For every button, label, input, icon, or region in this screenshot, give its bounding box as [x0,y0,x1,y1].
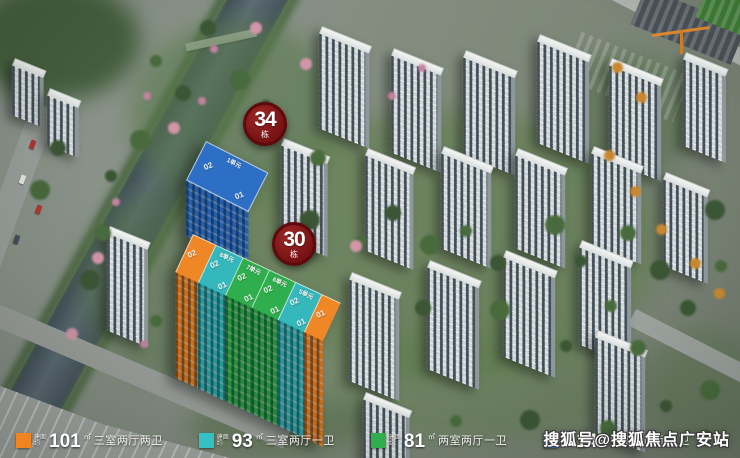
tree [630,340,646,356]
blossom-tree [388,92,396,100]
tree [415,300,431,316]
legend-room-type: 三室两厅两卫 [94,432,163,448]
legend-area-unit: ㎡ [256,434,263,441]
blossom-tree [350,240,362,252]
tree [660,400,672,412]
blossom-tree [66,328,78,340]
facade-section [198,283,225,402]
legend-room-type: 三室两厅一卫 [266,432,335,448]
autumn-tree [630,186,641,197]
flat-number: 01 [315,308,327,320]
aerial-render: 1单元 02 01 02 8单元 02 01 7单元 02 01 [0,0,740,458]
badge-suffix: 栋 [290,251,298,259]
facade-section [278,320,304,438]
tree [200,20,216,36]
tree [490,255,506,271]
flat-number: 02 [288,296,300,308]
residential-tower [357,48,444,159]
tree [650,260,670,280]
blossom-tree [250,22,262,34]
badge-suffix: 栋 [261,131,269,139]
blossom-tree [210,45,218,53]
legend-room-type: 两室两厅一卫 [438,432,507,448]
blossom-tree [143,92,151,100]
blossom-tree [198,97,206,105]
tower-facade [107,233,148,347]
legend-color-swatch [16,433,31,448]
legend-item: 建面约 93 ㎡ 三室两厅一卫 [199,432,335,450]
blossom-tree [168,122,180,134]
tree [420,235,440,255]
autumn-tree [612,62,623,73]
legend-area-value: 93 [232,434,253,450]
tower-facade [391,55,441,172]
legend-area-value: 101 [49,434,81,450]
legend-item: 建面约 81 ㎡ 两室两厅一卫 [371,432,507,450]
tower-facade [427,267,479,389]
autumn-tree [604,150,615,161]
residential-tower [502,34,592,150]
flat-number: 02 [262,283,274,295]
legend-area-prefix: 建面约 [389,435,401,448]
autumn-tree [714,288,725,299]
building-34-badge[interactable]: 34 栋 [243,102,287,146]
tower-facade [349,279,399,401]
tree [30,180,50,200]
tree [620,225,636,241]
watermark: 搜狐号@搜狐焦点广安站 [543,426,730,450]
unit-label: 7单元 [245,262,263,277]
tree [385,205,401,221]
legend-color-swatch [199,433,214,448]
building-30-badge[interactable]: 30 栋 [272,222,316,266]
tree [575,255,587,267]
tree [700,380,720,400]
tree [450,415,462,427]
tree [545,215,565,235]
tree [105,170,117,182]
flat-number: 02 [236,271,248,283]
unit-label: 6单元 [271,274,289,289]
legend-color-swatch [371,433,386,448]
facade-section [251,308,277,426]
tree [605,300,617,312]
blossom-tree [418,64,426,72]
tree [150,55,162,67]
tree [230,70,250,90]
autumn-tree [656,224,667,235]
tree [490,300,510,320]
facade-section [225,295,251,413]
autumn-tree [636,92,647,103]
flat-number: 02 [186,248,198,260]
tower-facade [515,155,565,268]
flat-number: 02 [202,160,214,172]
tree [715,260,727,272]
legend-area-value: 81 [404,434,425,450]
unit-label: 5单元 [297,287,315,302]
tree [520,410,540,430]
legend-area-unit: ㎡ [428,434,435,441]
unit-label: 8单元 [218,250,236,265]
tree [95,225,111,241]
autumn-tree [690,258,701,269]
tower-facade [441,153,491,268]
tree [705,200,725,220]
residential-tower [633,172,710,272]
blossom-tree [300,58,312,70]
legend-area-prefix: 建面约 [34,435,46,448]
flat-number: 01 [234,190,246,202]
blossom-tree [92,252,104,264]
tree [130,130,150,150]
tree [175,85,191,101]
tree [80,270,100,290]
legend-area-prefix: 建面约 [217,435,229,448]
tree [310,150,326,166]
tree [50,140,66,156]
blossom-tree [112,198,120,206]
facade-section [175,272,198,388]
car [13,234,21,244]
badge-number: 34 [254,109,275,130]
legend-area-unit: ㎡ [84,434,91,441]
tower-facade [683,59,726,163]
badge-number: 30 [283,229,304,250]
legend-item: 建面约 101 ㎡ 三室两厅两卫 [16,432,163,450]
facade-section [304,332,323,447]
tower-facade [503,257,555,377]
tree [680,300,696,316]
tree [560,340,572,352]
flat-number: 02 [209,259,221,271]
crane-icon [680,30,683,54]
car [35,204,43,214]
tree [460,225,472,237]
